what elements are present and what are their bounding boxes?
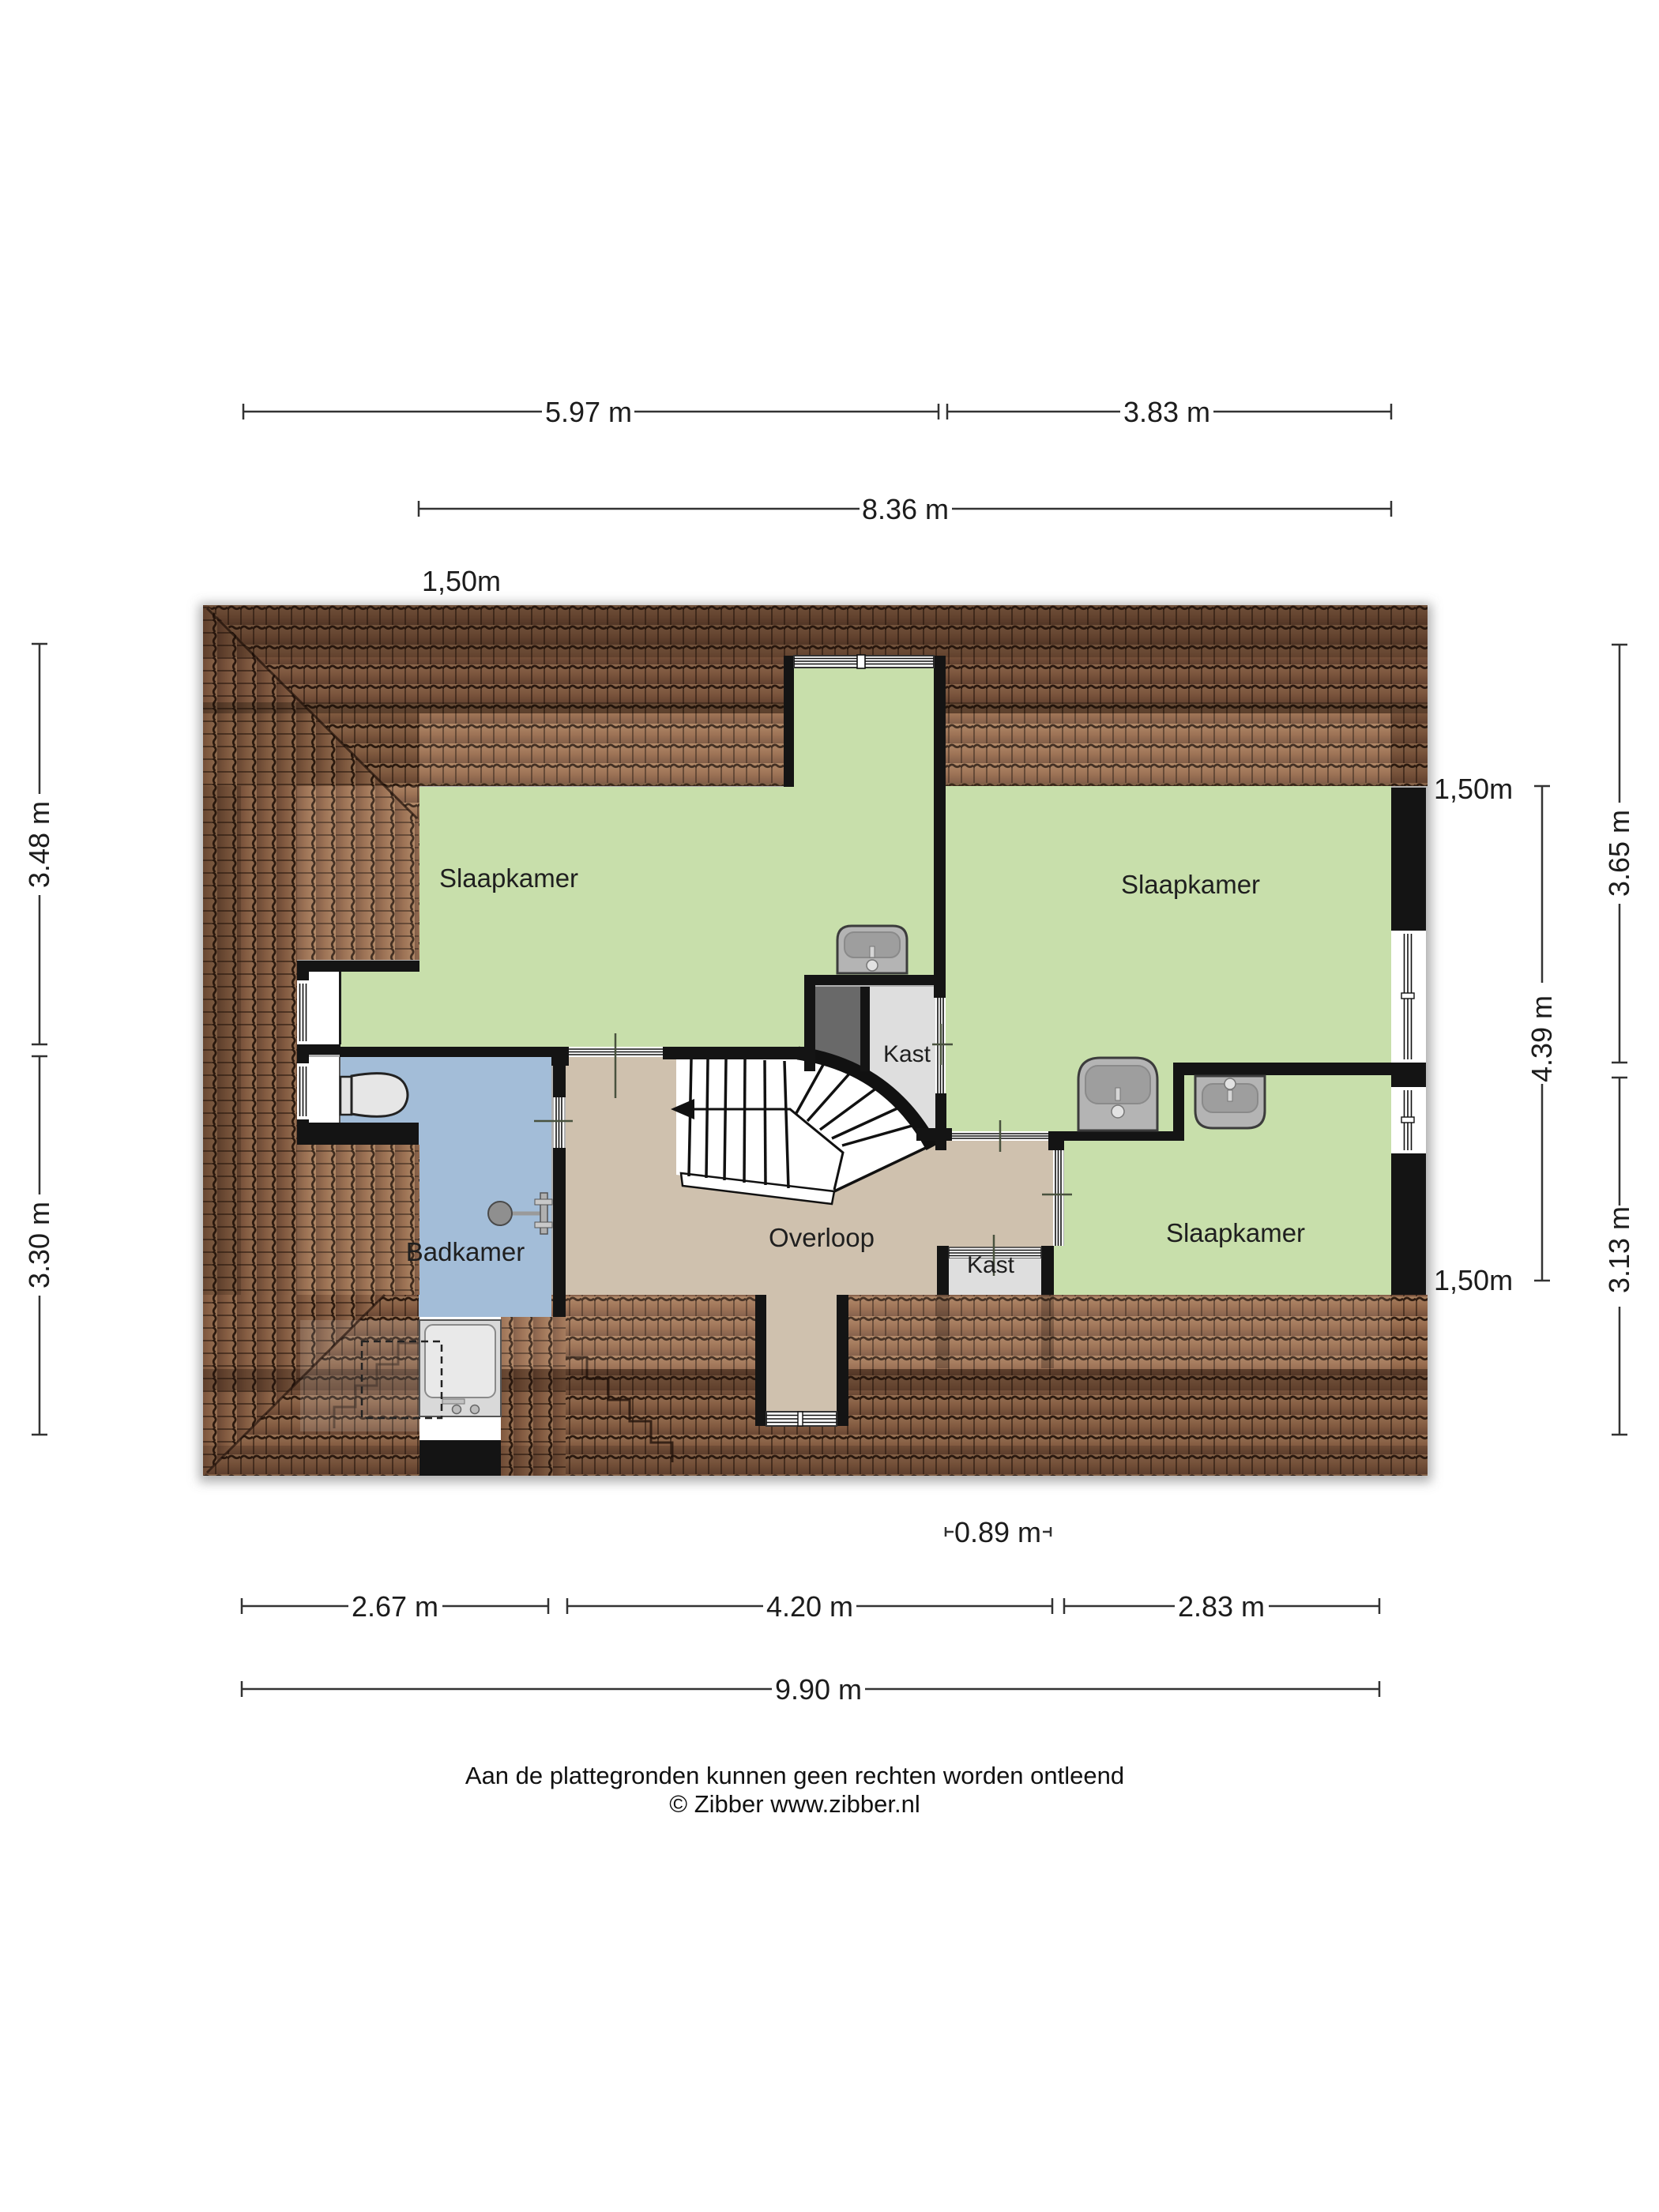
svg-text:Overloop: Overloop: [769, 1223, 875, 1252]
svg-text:© Zibber www.zibber.nl: © Zibber www.zibber.nl: [669, 1790, 920, 1818]
svg-text:3.30 m: 3.30 m: [23, 1202, 55, 1288]
svg-text:4.20 m: 4.20 m: [766, 1590, 853, 1623]
svg-text:8.36 m: 8.36 m: [862, 493, 949, 525]
svg-text:1,50m: 1,50m: [1434, 1264, 1513, 1296]
svg-text:Kast: Kast: [883, 1041, 931, 1067]
svg-text:Aan de plattegronden kunnen ge: Aan de plattegronden kunnen geen rechten…: [465, 1762, 1124, 1789]
svg-text:Slaapkamer: Slaapkamer: [1121, 870, 1260, 899]
svg-text:1,50m: 1,50m: [1434, 773, 1513, 805]
svg-text:3.13 m: 3.13 m: [1603, 1206, 1635, 1293]
svg-text:2.67 m: 2.67 m: [352, 1590, 438, 1623]
svg-text:Badkamer: Badkamer: [406, 1237, 525, 1266]
svg-text:3.48 m: 3.48 m: [23, 801, 55, 888]
svg-text:Slaapkamer: Slaapkamer: [439, 863, 578, 893]
svg-text:Slaapkamer: Slaapkamer: [1166, 1218, 1305, 1247]
svg-text:4.39 m: 4.39 m: [1525, 995, 1558, 1082]
svg-text:3.65 m: 3.65 m: [1603, 810, 1635, 897]
svg-text:0.89 m: 0.89 m: [954, 1516, 1041, 1548]
svg-text:Kast: Kast: [967, 1252, 1015, 1278]
svg-text:3.83 m: 3.83 m: [1123, 396, 1210, 428]
svg-text:5.97 m: 5.97 m: [545, 396, 632, 428]
svg-text:1,50m: 1,50m: [422, 565, 501, 597]
svg-text:9.90 m: 9.90 m: [775, 1673, 862, 1706]
svg-text:2.83 m: 2.83 m: [1178, 1590, 1265, 1623]
